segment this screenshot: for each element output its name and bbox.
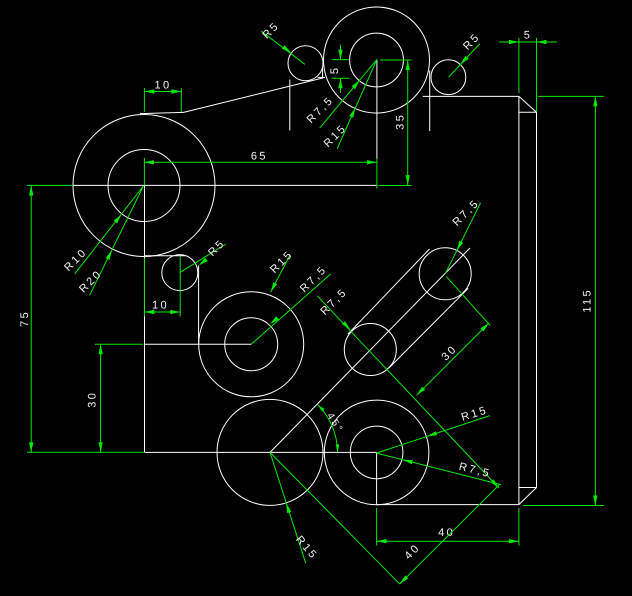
svg-text:35: 35 <box>394 113 406 130</box>
svg-text:30: 30 <box>86 391 98 408</box>
svg-text:10: 10 <box>152 299 169 311</box>
svg-text:5: 5 <box>524 30 533 42</box>
svg-text:75: 75 <box>19 310 31 327</box>
svg-text:10: 10 <box>154 80 171 92</box>
svg-text:65: 65 <box>251 151 268 163</box>
svg-text:5: 5 <box>329 66 341 75</box>
svg-text:115: 115 <box>581 288 593 313</box>
